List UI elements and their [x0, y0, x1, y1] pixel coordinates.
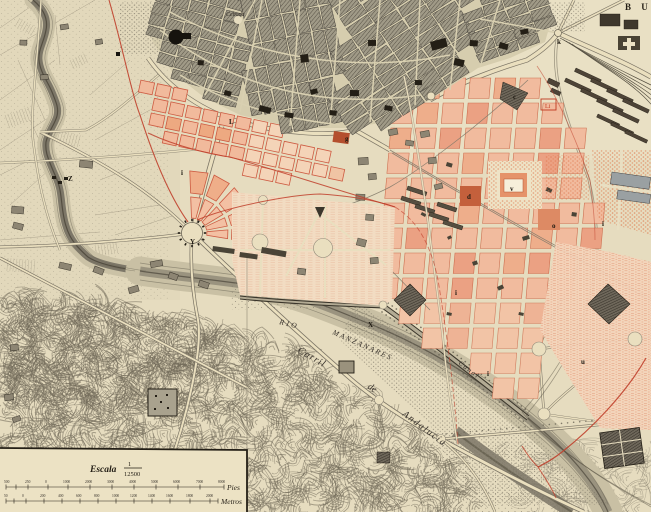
svg-text:Li: Li: [545, 104, 551, 110]
svg-text:i: i: [487, 370, 489, 378]
svg-text:d: d: [467, 193, 471, 201]
svg-text:Y: Y: [190, 238, 195, 246]
svg-text:0: 0: [45, 480, 47, 484]
svg-text:2000: 2000: [206, 494, 213, 498]
svg-text:0: 0: [22, 494, 24, 498]
svg-text:Metros: Metros: [220, 497, 242, 506]
svg-text:g: g: [345, 135, 349, 143]
svg-text:c: c: [513, 93, 516, 101]
svg-text:3000: 3000: [107, 480, 114, 484]
svg-text:L: L: [229, 118, 234, 126]
svg-text:Z: Z: [68, 175, 73, 183]
svg-text:6000: 6000: [173, 480, 180, 484]
svg-text:1600: 1600: [166, 494, 173, 498]
svg-text:B U: B U: [625, 2, 651, 12]
svg-text:X: X: [368, 321, 373, 329]
svg-text:8000: 8000: [218, 480, 225, 484]
svg-text:2000: 2000: [85, 480, 92, 484]
svg-text:12500: 12500: [124, 471, 140, 478]
svg-text:i: i: [455, 289, 457, 297]
svg-text:k: k: [557, 38, 561, 46]
svg-text:250: 250: [25, 480, 31, 484]
svg-text:1000: 1000: [63, 480, 70, 484]
svg-text:1400: 1400: [148, 494, 155, 498]
svg-text:800: 800: [94, 494, 100, 498]
svg-text:1800: 1800: [186, 494, 193, 498]
svg-text:Cebada: Cebada: [226, 12, 245, 18]
svg-text:400: 400: [58, 494, 64, 498]
svg-text:500: 500: [4, 480, 10, 484]
svg-text:5000: 5000: [151, 480, 158, 484]
svg-text:Escala: Escala: [89, 465, 117, 475]
svg-text:v: v: [510, 185, 514, 193]
svg-text:o: o: [552, 222, 556, 230]
svg-text:i: i: [181, 169, 183, 177]
svg-text:200: 200: [40, 494, 46, 498]
svg-text:u: u: [581, 358, 585, 366]
svg-text:50: 50: [4, 494, 8, 498]
svg-text:i: i: [602, 220, 604, 228]
svg-text:4000: 4000: [129, 480, 136, 484]
svg-text:7000: 7000: [196, 480, 203, 484]
svg-text:1000: 1000: [112, 494, 119, 498]
svg-text:600: 600: [76, 494, 82, 498]
svg-text:Pies: Pies: [226, 483, 240, 492]
svg-text:1: 1: [128, 461, 131, 468]
svg-text:1200: 1200: [130, 494, 137, 498]
